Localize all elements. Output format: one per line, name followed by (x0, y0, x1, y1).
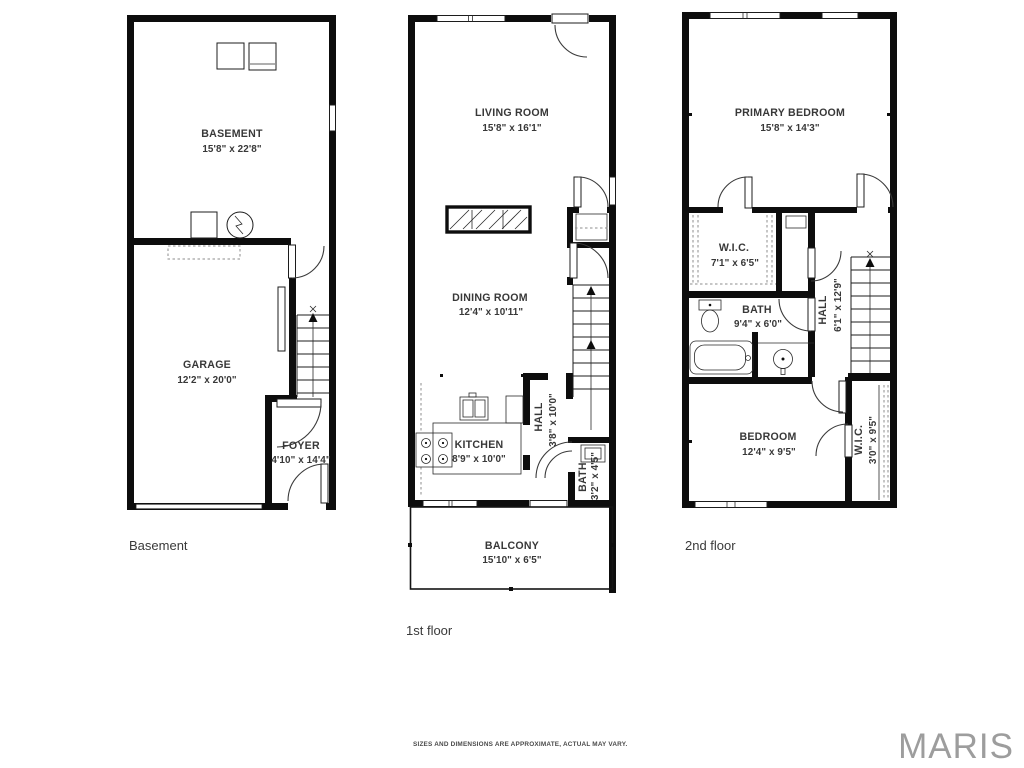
washer-dryer-icon (217, 43, 276, 70)
door-primary-to-hall (857, 174, 893, 207)
room-label: LIVING ROOM (475, 107, 549, 119)
door-living-to-hall (574, 177, 608, 207)
door-basement-to-stairs (289, 245, 325, 278)
floorplan-canvas: BASEMENT 15'8" x 22'8" GARAGE 12'2" x 20… (0, 0, 1024, 768)
room-dims: 15'10" x 6'5" (482, 555, 542, 566)
room-label: BATH (742, 304, 772, 316)
front-door (551, 14, 589, 57)
stairs (573, 285, 609, 430)
room-label: BASEMENT (201, 128, 263, 140)
room-dims: 3'2" x 4'5" (590, 452, 601, 500)
window (330, 105, 336, 131)
door-primary-to-wic (718, 177, 752, 208)
room-label: DINING ROOM (452, 292, 528, 304)
room-label: BEDROOM (739, 431, 796, 443)
bathtub-icon (690, 341, 753, 374)
room-dims: 9'4" x 6'0" (734, 319, 782, 330)
dimension-ticks (689, 113, 890, 443)
door-hall-to-bedroom (812, 381, 846, 413)
stairs (297, 306, 329, 397)
sink-icon (758, 343, 814, 375)
caption-basement: Basement (129, 538, 188, 553)
room-label: FOYER (282, 440, 320, 452)
water-heater-icon (191, 212, 253, 238)
room-dims: 3'0" x 9'5" (868, 416, 879, 464)
room-label: BALCONY (485, 540, 539, 552)
floorplan-second-floor: PRIMARY BEDROOM 15'8" x 14'3" W.I.C. 7'1… (673, 8, 905, 520)
room-label: HALL (817, 295, 829, 325)
floorplan-first-floor: LIVING ROOM 15'8" x 16'1" DINING ROOM 12… (393, 8, 633, 602)
stair-railing (278, 287, 285, 351)
stove-icon (416, 433, 452, 467)
toilet-icon (699, 300, 721, 332)
door-hall-to-bath (779, 298, 815, 331)
room-labels: PRIMARY BEDROOM 15'8" x 14'3" W.I.C. 7'1… (711, 107, 879, 464)
room-dims: 6'1" x 12'9" (833, 278, 844, 332)
room-label: GARAGE (183, 359, 231, 371)
garage-door (136, 504, 262, 509)
room-label: BATH (577, 462, 589, 492)
balcony-door (529, 500, 568, 507)
floorplan-basement: BASEMENT 15'8" x 22'8" GARAGE 12'2" x 20… (118, 8, 353, 520)
room-dims: 12'4" x 10'11" (459, 307, 524, 318)
room-dims: 12'4" x 9'5" (742, 447, 796, 458)
room-dims: 4'10" x 14'4" (271, 455, 331, 466)
wic2-rods (879, 385, 888, 500)
entry-door (288, 464, 328, 510)
room-dims: 15'8" x 14'3" (760, 123, 820, 134)
dimension-ticks (131, 185, 333, 377)
room-dims: 12'2" x 20'0" (177, 375, 237, 386)
caption-second-floor: 2nd floor (685, 538, 736, 553)
room-dims: 15'8" x 16'1" (482, 123, 542, 134)
room-label: KITCHEN (455, 439, 504, 451)
room-label: W.I.C. (853, 425, 865, 455)
room-dims: 8'9" x 10'0" (452, 454, 506, 465)
storage-dashed (168, 246, 240, 259)
stairs (851, 251, 890, 373)
maris-logo: MARIS (898, 727, 1014, 767)
caption-first-floor: 1st floor (406, 623, 452, 638)
room-dims: 3'8" x 10'0" (548, 393, 559, 447)
fireplace-icon (447, 207, 530, 232)
closet (575, 214, 608, 240)
door-dining-to-stairs (570, 243, 608, 278)
room-label: W.I.C. (719, 242, 749, 254)
disclaimer-text: SIZES AND DIMENSIONS ARE APPROXIMATE, AC… (413, 741, 628, 748)
walls (127, 15, 336, 510)
room-label: HALL (533, 402, 545, 432)
door-bedroom-to-wic (816, 424, 852, 457)
room-labels: BASEMENT 15'8" x 22'8" GARAGE 12'2" x 20… (177, 128, 331, 466)
room-dims: 7'1" x 6'5" (711, 258, 759, 269)
room-label: PRIMARY BEDROOM (735, 107, 845, 119)
room-dims: 15'8" x 22'8" (202, 144, 262, 155)
